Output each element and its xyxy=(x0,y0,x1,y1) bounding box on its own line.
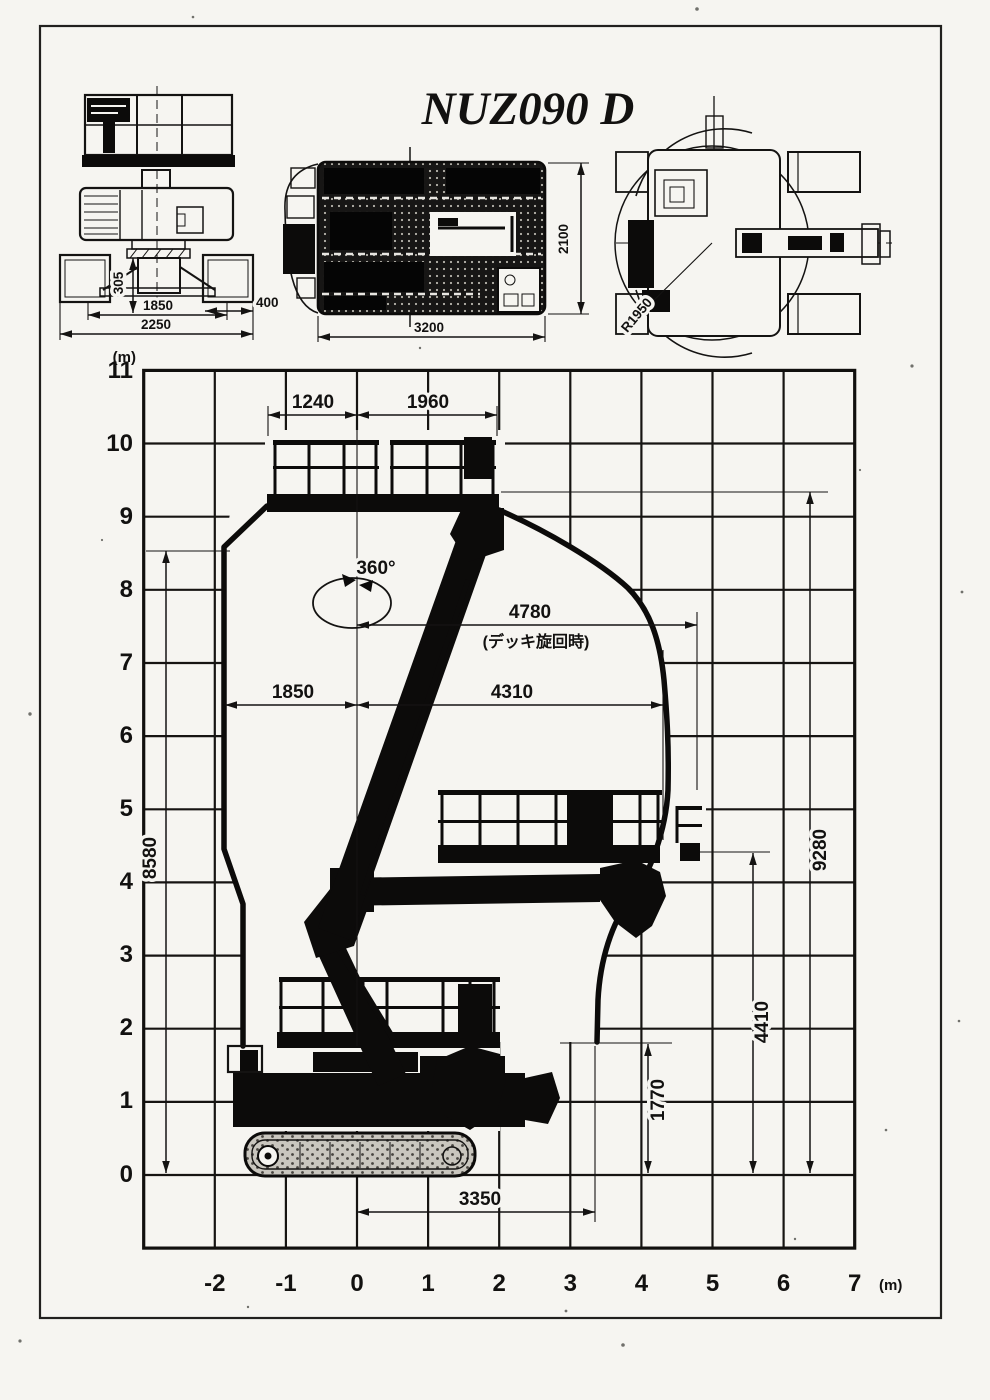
y-tick-5: 5 xyxy=(120,795,133,822)
boom-horizontal-arm xyxy=(336,874,600,906)
dim-9280-label: 9280 xyxy=(810,829,831,871)
front-platform-floor xyxy=(82,155,235,167)
x-tick-neg1: -1 xyxy=(275,1270,296,1297)
x-tick-neg2: -2 xyxy=(204,1270,225,1297)
front-right-track xyxy=(203,255,253,302)
dim-4780-note: (デッキ旋回時) xyxy=(483,632,590,651)
spec-sheet-drawing: NUZ090 D xyxy=(0,0,990,1400)
dim-1850-label: 1850 xyxy=(272,682,314,703)
range-diagram: 1240 1960 360° 4780 (デッキ旋回時) 1850 4310 8… xyxy=(106,349,902,1297)
y-tick-7: 7 xyxy=(120,649,133,676)
front-left-track xyxy=(60,255,110,302)
y-tick-8: 8 xyxy=(120,576,133,603)
swing-track-top xyxy=(788,152,860,192)
scanned-spec-sheet: NUZ090 D xyxy=(0,0,990,1400)
dim-3350-label: 3350 xyxy=(459,1189,501,1210)
front-dim-1850-label: 1850 xyxy=(143,298,173,313)
front-dim-305-label: 305 xyxy=(111,271,126,294)
dim-1240-label: 1240 xyxy=(292,392,334,413)
x-tick-6: 6 xyxy=(777,1270,790,1297)
x-tick-1: 1 xyxy=(421,1270,434,1297)
model-title: NUZ090 D xyxy=(421,83,635,135)
x-tick-7: 7 xyxy=(848,1270,861,1297)
front-view: 305 1850 2250 400 xyxy=(60,86,279,340)
deck-plan-view: 3200 2100 xyxy=(283,147,589,342)
x-tick-0: 0 xyxy=(350,1270,363,1297)
y-tick-1: 1 xyxy=(120,1087,133,1114)
front-dim-2250-label: 2250 xyxy=(141,317,171,332)
x-axis-unit: (m) xyxy=(879,1277,902,1294)
front-dim-400-label: 400 xyxy=(256,295,279,310)
y-tick-3: 3 xyxy=(120,941,133,968)
dim-4780-label: 4780 xyxy=(509,602,551,623)
dim-1770-label: 1770 xyxy=(648,1079,669,1121)
y-tick-2: 2 xyxy=(120,1014,133,1041)
y-tick-0: 0 xyxy=(120,1161,133,1188)
y-tick-9: 9 xyxy=(120,503,133,530)
dim-4410-label: 4410 xyxy=(752,1001,773,1043)
mid-deck-floor xyxy=(438,845,660,863)
counterweight xyxy=(628,220,654,288)
swing-plan-view: R1950 xyxy=(615,96,892,357)
y-tick-4: 4 xyxy=(120,868,134,895)
y-axis-labels: (m) 11 10 9 8 7 6 5 4 3 2 1 0 xyxy=(106,349,136,1188)
dim-360-label: 360° xyxy=(356,558,395,579)
x-tick-4: 4 xyxy=(635,1270,649,1297)
dim-8580-label: 8580 xyxy=(140,837,161,879)
x-tick-2: 2 xyxy=(493,1270,506,1297)
swing-track-bottom xyxy=(788,294,860,334)
x-tick-3: 3 xyxy=(564,1270,577,1297)
y-tick-6: 6 xyxy=(120,722,133,749)
dim-4310-label: 4310 xyxy=(491,682,533,703)
top-deck-floor xyxy=(267,494,499,512)
deck-dim-2100-label: 2100 xyxy=(556,224,571,254)
y-tick-11: 11 xyxy=(108,357,133,384)
dim-1960-label: 1960 xyxy=(407,392,449,413)
x-axis-labels: -2 -1 0 1 2 3 4 5 6 7 (m) xyxy=(204,1270,902,1297)
y-tick-10: 10 xyxy=(106,430,133,457)
x-tick-5: 5 xyxy=(706,1270,719,1297)
deck-dim-3200-label: 3200 xyxy=(414,320,444,335)
